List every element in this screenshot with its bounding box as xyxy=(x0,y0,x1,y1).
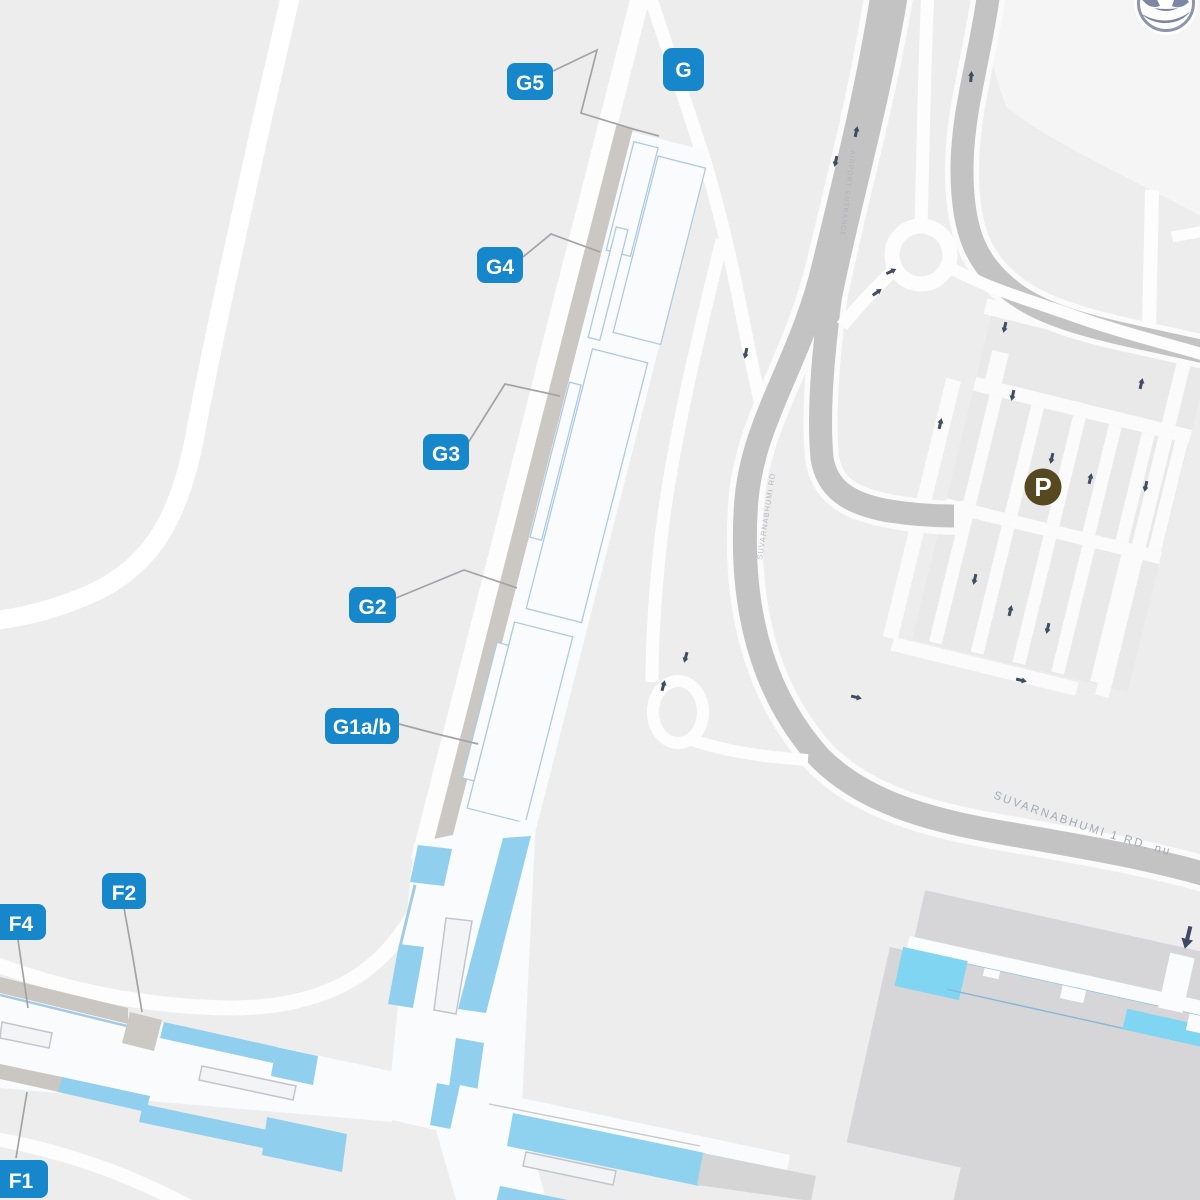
svg-text:P: P xyxy=(1034,472,1051,502)
svg-text:G3: G3 xyxy=(432,443,460,466)
svg-text:G4: G4 xyxy=(486,256,514,279)
svg-text:G2: G2 xyxy=(358,596,386,619)
svg-text:G: G xyxy=(675,59,691,82)
svg-text:F2: F2 xyxy=(112,882,137,905)
svg-text:G1a/b: G1a/b xyxy=(333,716,391,739)
svg-text:G5: G5 xyxy=(516,72,544,95)
svg-text:F4: F4 xyxy=(9,913,34,936)
svg-text:F1: F1 xyxy=(9,1170,34,1193)
